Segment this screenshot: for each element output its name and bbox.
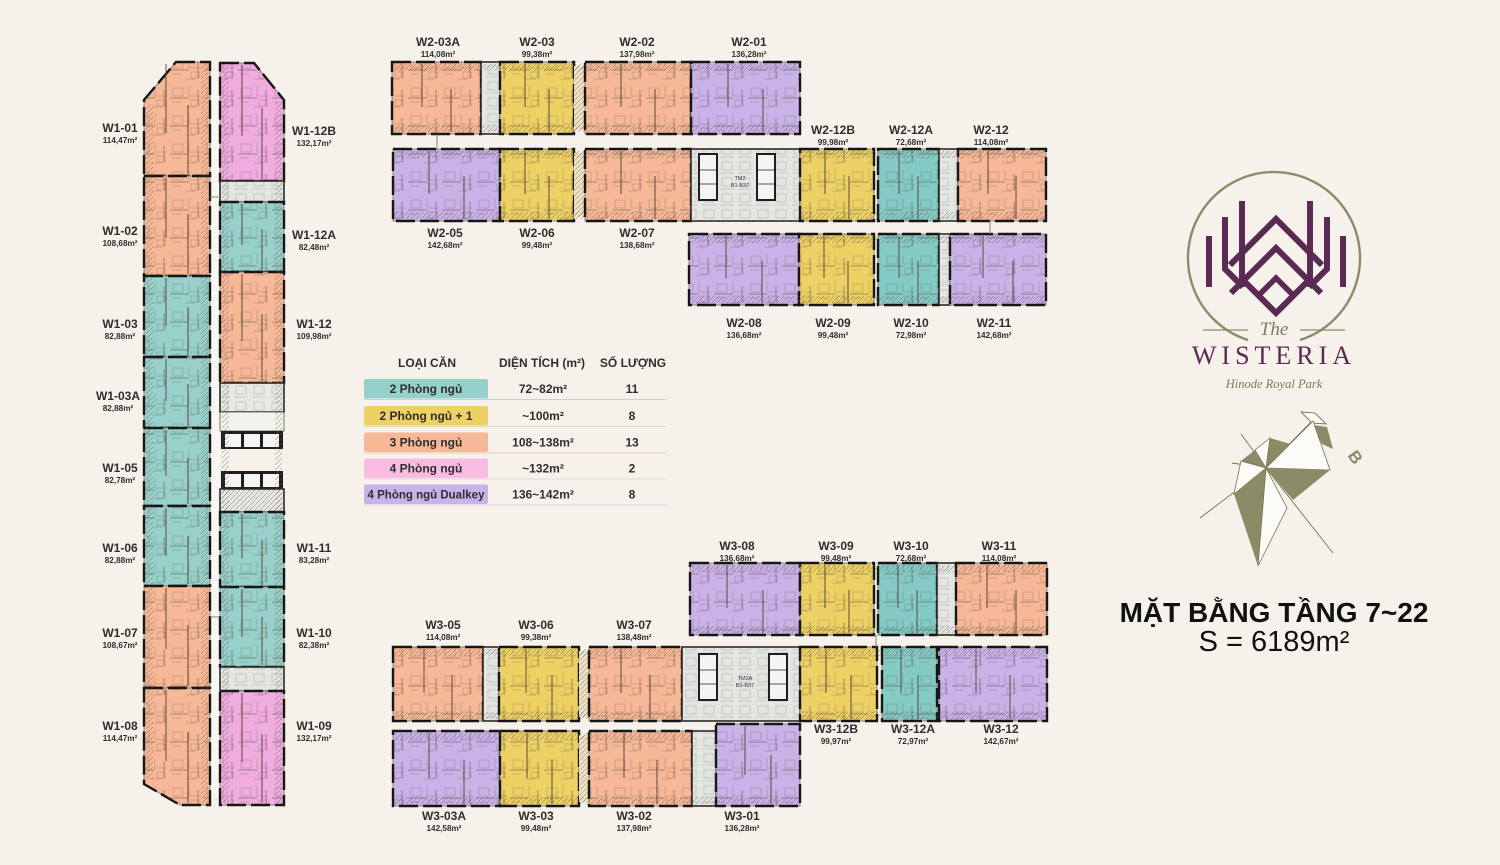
svg-text:W2-01: W2-01 [731,35,767,49]
svg-text:W3-10: W3-10 [893,539,929,553]
svg-text:~100m²: ~100m² [522,409,564,423]
svg-text:W1-12: W1-12 [296,317,332,331]
svg-text:82,88m²: 82,88m² [103,404,134,413]
svg-text:~132m²: ~132m² [522,462,564,476]
svg-text:W1-01: W1-01 [102,121,138,135]
svg-text:W3-06: W3-06 [518,618,554,632]
svg-text:108,68m²: 108,68m² [102,239,137,248]
svg-text:132,17m²: 132,17m² [296,139,331,148]
svg-text:82,88m²: 82,88m² [105,332,136,341]
svg-text:114,08m²: 114,08m² [974,138,1009,147]
svg-text:138,48m²: 138,48m² [616,633,651,642]
svg-text:11: 11 [626,382,639,396]
svg-text:8: 8 [629,488,636,502]
svg-text:72,68m²: 72,68m² [896,554,927,563]
svg-text:142,58m²: 142,58m² [426,824,461,833]
svg-text:142,68m²: 142,68m² [976,331,1011,340]
svg-text:99,48m²: 99,48m² [522,241,553,250]
svg-text:2 Phòng ngủ + 1: 2 Phòng ngủ + 1 [379,409,472,423]
svg-text:The: The [1260,319,1289,340]
svg-text:138,68m²: 138,68m² [619,241,654,250]
svg-text:W2-07: W2-07 [619,226,655,240]
svg-text:W1-08: W1-08 [102,719,138,733]
svg-text:W2-02: W2-02 [619,35,655,49]
svg-text:W2-09: W2-09 [815,316,851,330]
svg-text:114,47m²: 114,47m² [103,136,138,145]
svg-text:132,17m²: 132,17m² [296,734,331,743]
svg-text:W3-03: W3-03 [518,809,554,823]
svg-text:72,98m²: 72,98m² [896,331,927,340]
svg-text:W1-12A: W1-12A [292,228,336,242]
svg-text:72,68m²: 72,68m² [896,138,927,147]
svg-text:13: 13 [625,436,639,450]
svg-text:W3-03A: W3-03A [422,809,466,823]
svg-text:2: 2 [629,462,636,476]
svg-text:W3-05: W3-05 [425,618,461,632]
svg-text:W1-03A: W1-03A [96,389,140,403]
svg-text:142,68m²: 142,68m² [427,241,462,250]
svg-text:W1-09: W1-09 [296,719,332,733]
svg-text:W1-12B: W1-12B [292,124,336,138]
svg-text:W1-10: W1-10 [296,626,332,640]
svg-text:2 Phòng ngủ: 2 Phòng ngủ [390,382,463,396]
svg-text:8: 8 [629,409,636,423]
svg-text:W2-12A: W2-12A [889,123,933,137]
svg-text:W3-02: W3-02 [616,809,652,823]
svg-text:99,38m²: 99,38m² [521,633,552,642]
svg-text:W1-06: W1-06 [102,541,138,555]
svg-text:W1-05: W1-05 [102,461,138,475]
svg-text:72,97m²: 72,97m² [898,737,929,746]
svg-text:99,97m²: 99,97m² [821,737,852,746]
svg-text:136~142m²: 136~142m² [512,488,574,502]
svg-text:B1-B37: B1-B37 [736,683,754,689]
svg-text:W2-03A: W2-03A [416,35,460,49]
svg-text:99,98m²: 99,98m² [818,138,849,147]
svg-text:W1-07: W1-07 [102,626,138,640]
svg-text:TM2A: TM2A [738,676,753,682]
svg-text:137,98m²: 137,98m² [616,824,651,833]
svg-text:137,98m²: 137,98m² [619,50,654,59]
svg-text:82,88m²: 82,88m² [105,556,136,565]
svg-text:W2-12B: W2-12B [811,123,855,137]
svg-text:136,28m²: 136,28m² [731,50,766,59]
svg-text:W1-03: W1-03 [102,317,138,331]
svg-text:MẶT BẰNG TẦNG 7~22: MẶT BẰNG TẦNG 7~22 [1120,597,1429,628]
svg-text:S = 6189m²: S = 6189m² [1199,626,1350,658]
svg-text:114,08m²: 114,08m² [426,633,461,642]
svg-text:DIỆN TÍCH (m²): DIỆN TÍCH (m²) [499,355,585,370]
svg-text:W3-01: W3-01 [724,809,760,823]
svg-text:WISTERIA: WISTERIA [1192,341,1356,370]
svg-text:114,08m²: 114,08m² [421,50,456,59]
svg-text:99,48m²: 99,48m² [521,824,552,833]
svg-text:B1-B37: B1-B37 [731,183,749,189]
svg-text:4 Phòng ngủ: 4 Phòng ngủ [390,462,463,476]
svg-text:114,08m²: 114,08m² [982,554,1017,563]
svg-text:W2-10: W2-10 [893,316,929,330]
svg-text:136,68m²: 136,68m² [719,554,754,563]
svg-text:83,28m²: 83,28m² [299,556,330,565]
svg-text:W2-12: W2-12 [973,123,1009,137]
svg-text:109,98m²: 109,98m² [296,332,331,341]
svg-text:W2-11: W2-11 [977,316,1012,330]
svg-text:W3-12A: W3-12A [891,722,935,736]
svg-text:W2-03: W2-03 [519,35,555,49]
svg-text:W2-05: W2-05 [427,226,463,240]
svg-text:W2-06: W2-06 [519,226,555,240]
svg-text:W3-09: W3-09 [818,539,854,553]
svg-text:108,67m²: 108,67m² [102,641,137,650]
svg-text:W2-08: W2-08 [726,316,762,330]
svg-text:3 Phòng ngủ: 3 Phòng ngủ [390,436,463,450]
svg-text:114,47m²: 114,47m² [103,734,138,743]
svg-text:W3-12B: W3-12B [814,722,858,736]
svg-text:108~138m²: 108~138m² [512,436,574,450]
svg-text:136,28m²: 136,28m² [724,824,759,833]
svg-text:99,48m²: 99,48m² [821,554,852,563]
svg-text:99,48m²: 99,48m² [818,331,849,340]
svg-text:72~82m²: 72~82m² [519,382,567,396]
svg-text:Hinode Royal Park: Hinode Royal Park [1225,377,1323,391]
svg-text:W3-07: W3-07 [616,618,652,632]
svg-text:SỐ LƯỢNG: SỐ LƯỢNG [600,355,666,370]
svg-text:W3-08: W3-08 [719,539,755,553]
svg-text:LOẠI CĂN: LOẠI CĂN [398,355,456,370]
svg-text:142,67m²: 142,67m² [983,737,1018,746]
svg-text:82,48m²: 82,48m² [299,243,330,252]
svg-text:W1-11: W1-11 [297,541,332,555]
svg-text:99,38m²: 99,38m² [522,50,553,59]
svg-text:W3-11: W3-11 [982,539,1017,553]
svg-text:TM2: TM2 [735,176,746,182]
svg-text:W3-12: W3-12 [983,722,1019,736]
svg-text:W1-02: W1-02 [102,224,138,238]
svg-text:136,68m²: 136,68m² [726,331,761,340]
svg-text:82,38m²: 82,38m² [299,641,330,650]
svg-text:4 Phòng ngủ Dualkey: 4 Phòng ngủ Dualkey [368,490,486,502]
svg-text:82,78m²: 82,78m² [105,476,136,485]
